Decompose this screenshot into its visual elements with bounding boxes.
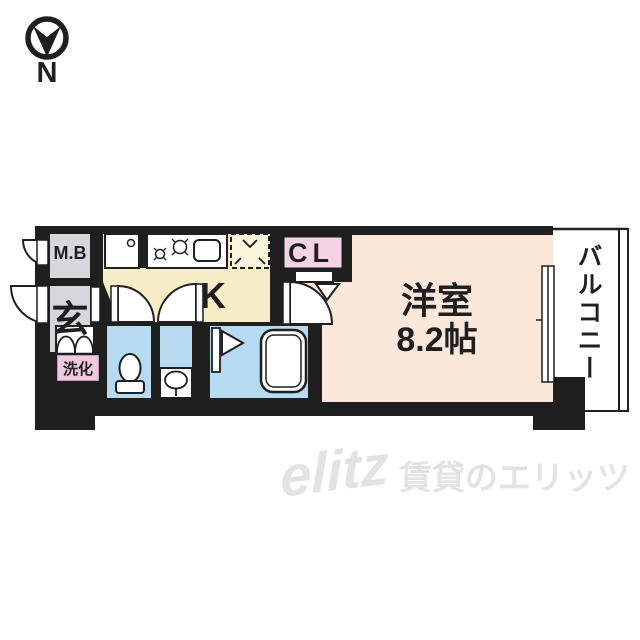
washbasin-icon xyxy=(160,368,192,398)
balcony-rail xyxy=(619,229,628,411)
floorplan-drawing: N xyxy=(0,0,640,640)
wall-block-bottom-left xyxy=(35,378,95,430)
door-arc-meter-box-icon xyxy=(23,240,48,265)
balcony-label: バルコニー xyxy=(573,243,603,413)
refrigerator-space-icon xyxy=(231,234,269,268)
western-room-name: 洋室 xyxy=(401,280,473,321)
closet-label: CL xyxy=(288,238,334,268)
washing-machine-icon xyxy=(105,234,139,268)
floorplan-image: N xyxy=(0,0,640,640)
western-room-size: 8.2帖 xyxy=(396,321,477,359)
meter-box-label: M.B xyxy=(54,243,87,263)
watermark: elitz 賃貸のエリッツ xyxy=(280,443,630,499)
entrance-label: 玄 xyxy=(52,299,89,340)
bathtub-icon xyxy=(261,330,306,392)
sink-icon xyxy=(194,240,220,261)
vanity-label: 洗化 xyxy=(63,360,93,378)
compass-icon xyxy=(28,19,66,57)
kitchen-label: K xyxy=(200,275,226,316)
kitchen-counter-icon xyxy=(147,234,227,268)
watermark-logo: elitz xyxy=(280,436,389,506)
compass-north-label: N xyxy=(37,57,58,89)
wall-counter-divider xyxy=(139,234,147,268)
watermark-text: 賃貸のエリッツ xyxy=(399,461,630,494)
